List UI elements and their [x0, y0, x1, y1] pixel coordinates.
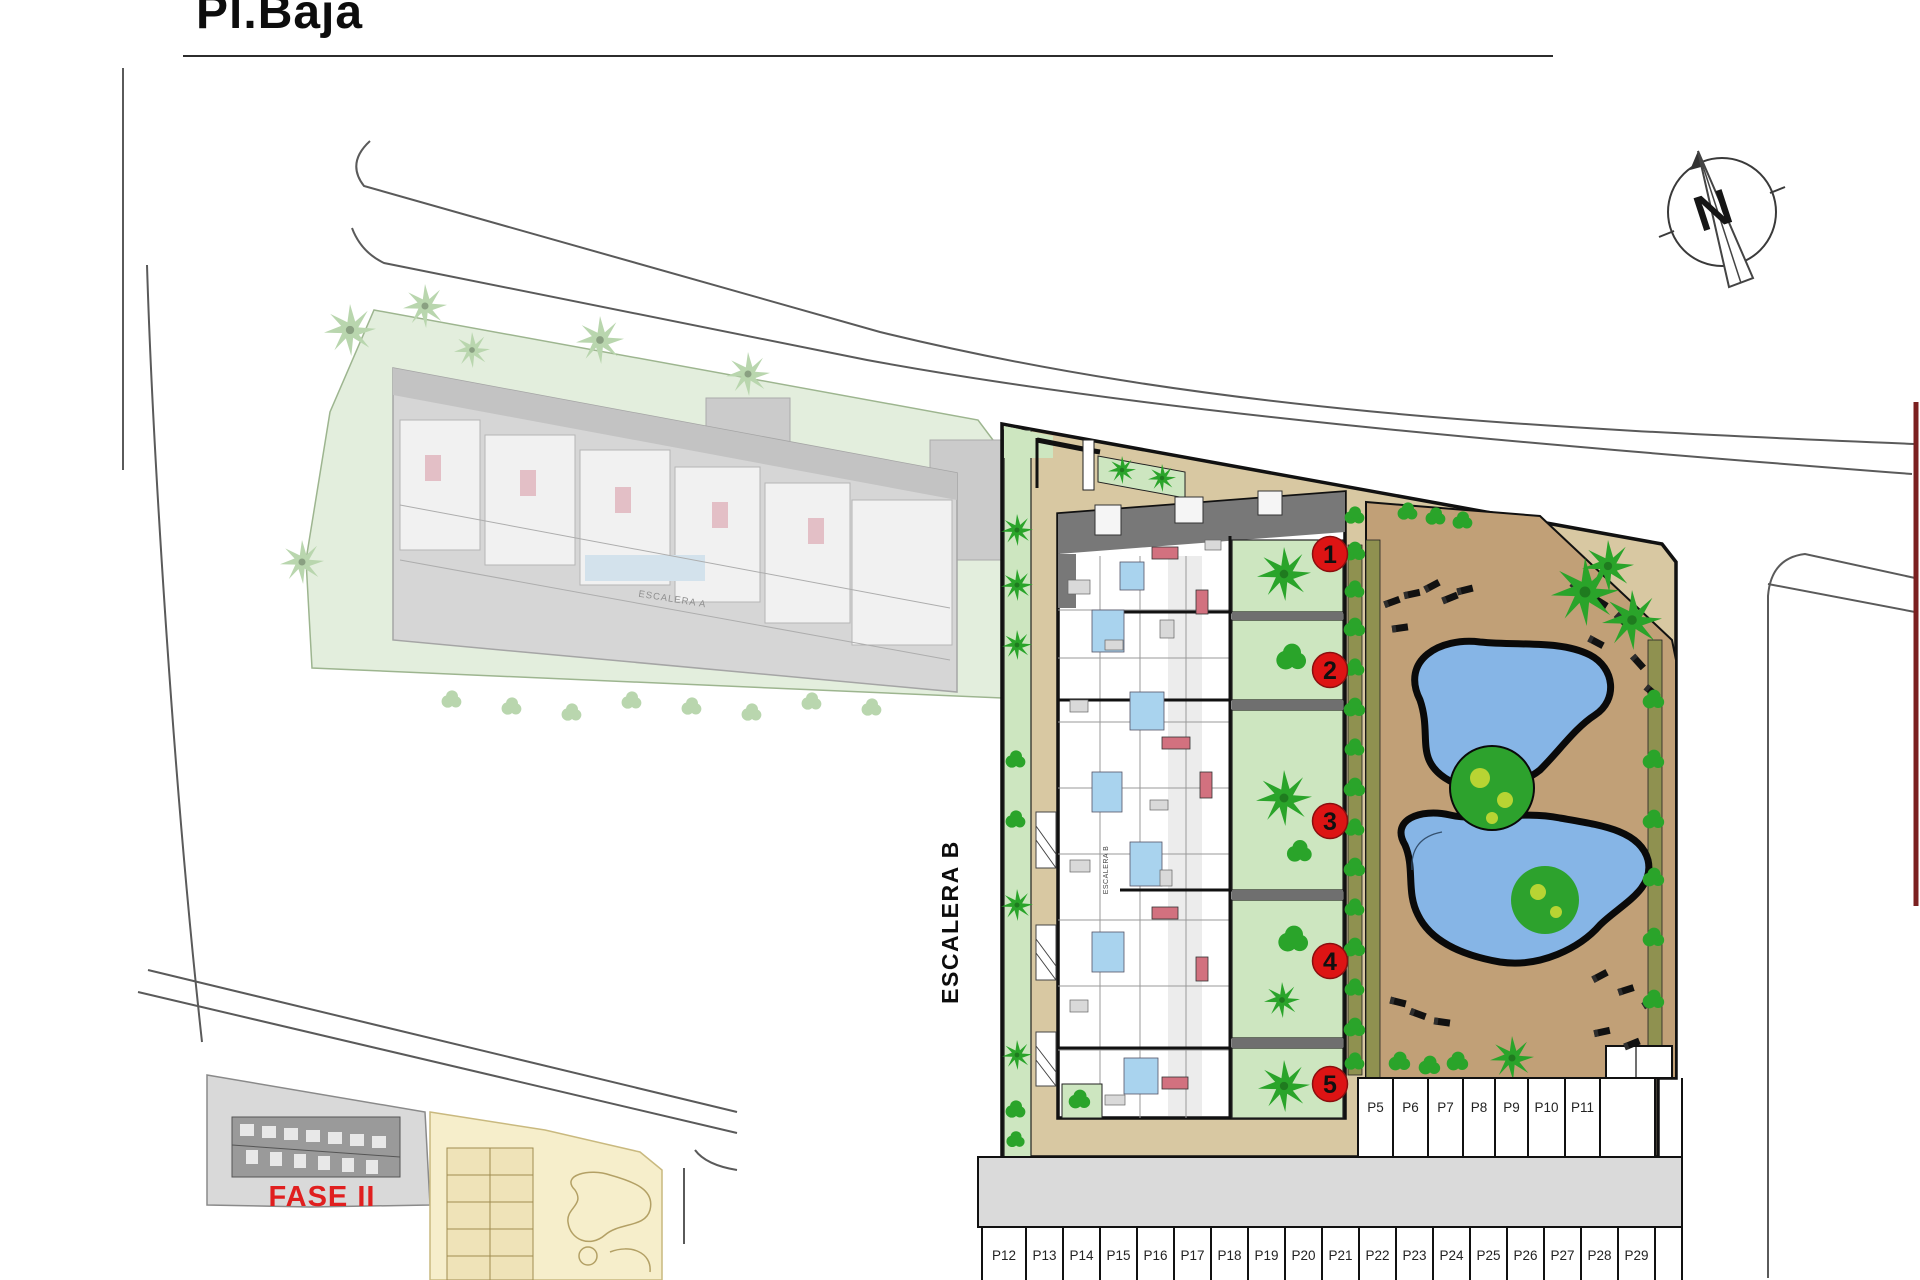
inset-fase1-building [447, 1148, 533, 1280]
parking-stall-label: P13 [1032, 1248, 1056, 1263]
unit-marker-number: 2 [1323, 657, 1337, 685]
unit-marker-number: 1 [1323, 541, 1337, 569]
parking-stall-label: P29 [1624, 1248, 1648, 1263]
unit-marker: 3 [1313, 804, 1348, 839]
escalera-b-mini-label: ESCALERA B [1103, 846, 1110, 895]
pool-storage-structure [1606, 1046, 1672, 1078]
parking-stall [1428, 1078, 1463, 1157]
parking-stall-label: P26 [1513, 1248, 1537, 1263]
parking-stall-label: P17 [1180, 1248, 1204, 1263]
parking-stall-label: P23 [1402, 1248, 1426, 1263]
parking-stall-label: P5 [1367, 1100, 1384, 1115]
pool-planter [1511, 866, 1579, 934]
parking-stall-label: P9 [1503, 1100, 1520, 1115]
inset-fase2-building [232, 1117, 400, 1177]
parking-stall-label: P15 [1106, 1248, 1130, 1263]
outdoor-stairs [1036, 812, 1056, 1086]
parking-stall-label: P19 [1254, 1248, 1278, 1263]
parking-stall [1565, 1078, 1600, 1157]
unit-marker-number: 4 [1323, 948, 1337, 976]
unit-marker: 5 [1313, 1067, 1348, 1102]
parking-stall-label: P12 [992, 1248, 1016, 1263]
parking-stall-label: P20 [1291, 1248, 1315, 1263]
parking-stall-label: P10 [1534, 1100, 1558, 1115]
parking-stall [1600, 1078, 1655, 1157]
parking-stall [1528, 1078, 1565, 1157]
building-escalera-b: ESCALERA B [1058, 491, 1345, 1118]
parking-stall-label: P11 [1571, 1100, 1594, 1115]
unit-marker: 2 [1313, 653, 1348, 688]
parking-stall-label: P8 [1471, 1100, 1488, 1115]
site-plan-page: Pl.Baja [0, 0, 1920, 1280]
parking-stall [1495, 1078, 1528, 1157]
unit-marker-number: 5 [1323, 1071, 1337, 1099]
parking-stall [1358, 1078, 1393, 1157]
parking-stall-label: P21 [1328, 1248, 1352, 1263]
site-plan-drawing: Pl.Baja [0, 0, 1920, 1280]
unit-marker: 1 [1313, 537, 1348, 572]
parking-row-bottom: P12P13P14P15P16P17P18P19P20P21P22P23P24P… [982, 1227, 1655, 1280]
parking-stall-label: P18 [1217, 1248, 1241, 1263]
parking-stall-label: P25 [1476, 1248, 1500, 1263]
parking-stall-label: P6 [1402, 1100, 1419, 1115]
escalera-b-parcel: ESCALERA B [1001, 424, 1676, 1157]
parking-stall [1463, 1078, 1495, 1157]
parking-stall-label: P16 [1143, 1248, 1167, 1263]
unit-marker: 4 [1313, 944, 1348, 979]
parking-stall-label: P27 [1550, 1248, 1574, 1263]
escalera-b-label: ESCALERA B [937, 840, 963, 1004]
page-title: Pl.Baja [196, 0, 363, 39]
unit-marker-number: 3 [1323, 808, 1337, 836]
parking-stall-label: P24 [1439, 1248, 1464, 1263]
pool-island [1450, 746, 1534, 830]
fase-2-label: FASE II [269, 1181, 376, 1213]
parking-stall [1393, 1078, 1428, 1157]
parking-stall-label: P28 [1587, 1248, 1611, 1263]
parking-row-top: P5P6P7P8P9P10P11 [1358, 1078, 1655, 1157]
parking-stall-label: P22 [1365, 1248, 1389, 1263]
parking-stall-label: P14 [1069, 1248, 1094, 1263]
building-corridor [1168, 556, 1202, 1116]
access-road [978, 1157, 1682, 1227]
parking-stall-label: P7 [1437, 1100, 1454, 1115]
